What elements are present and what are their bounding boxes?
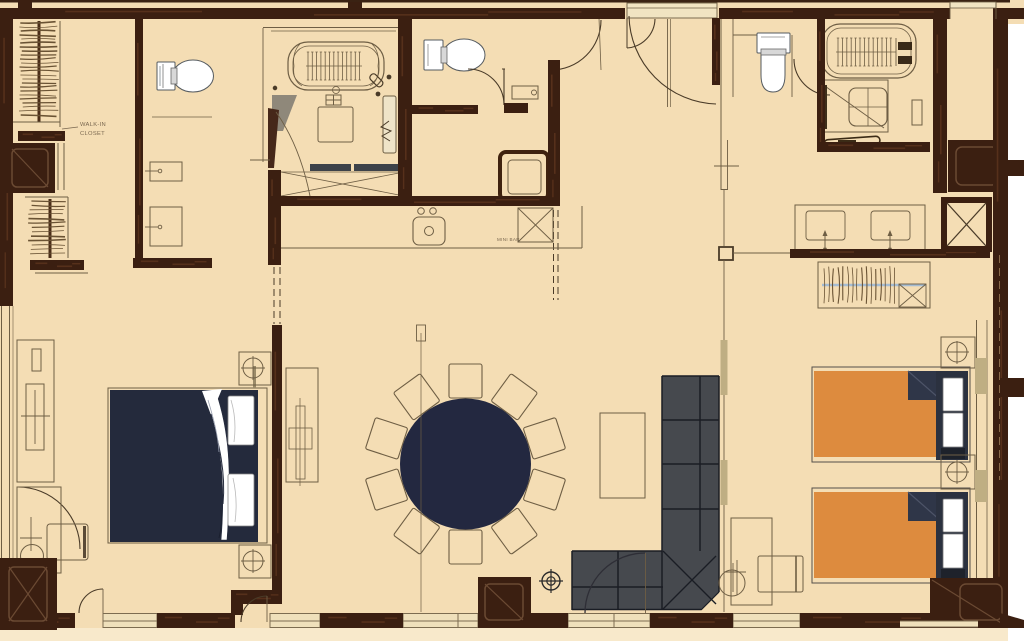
- svg-text:CLOSET: CLOSET: [80, 131, 105, 137]
- svg-text:WALK-IN: WALK-IN: [80, 122, 106, 128]
- svg-text:MINI BAR: MINI BAR: [497, 237, 520, 242]
